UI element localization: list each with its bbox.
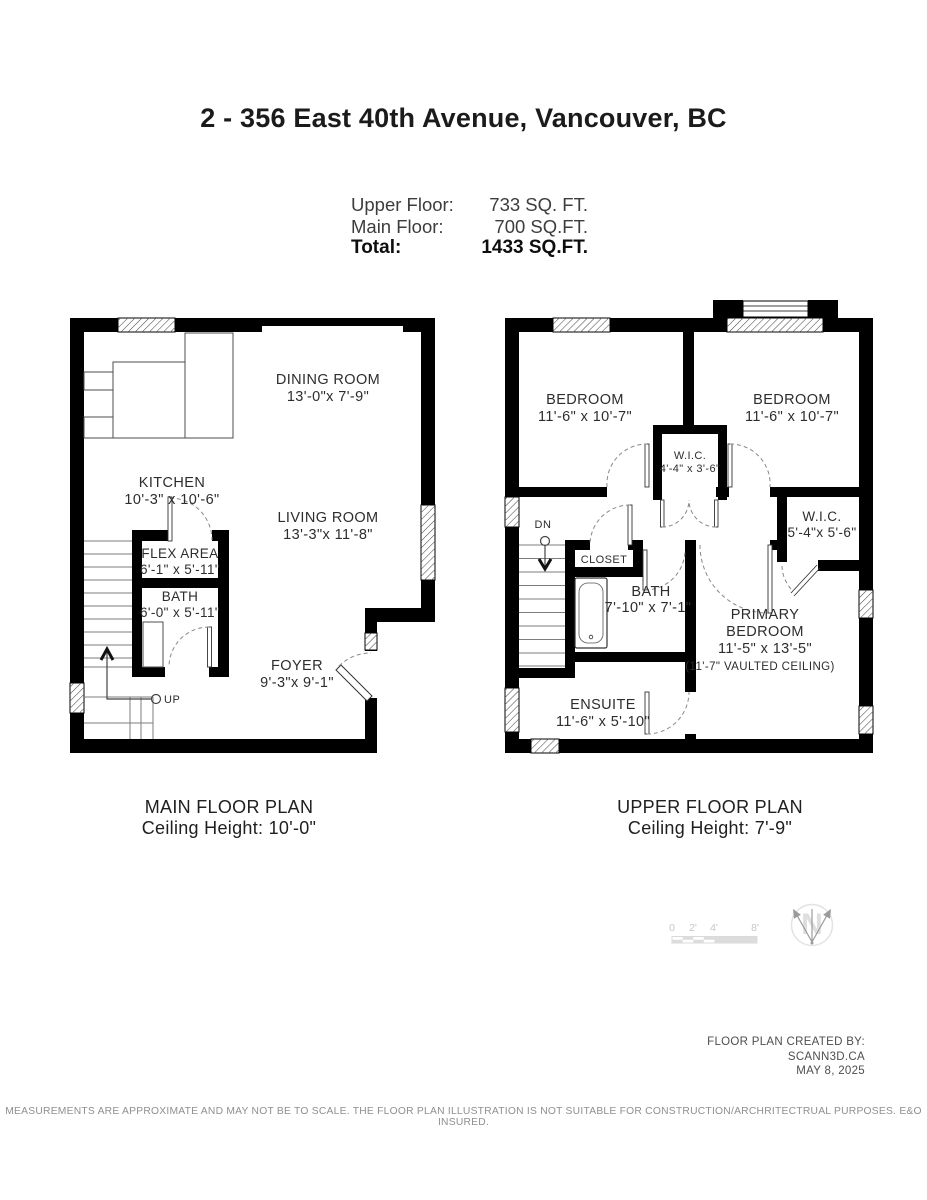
attribution: FLOOR PLAN CREATED BY: SCANN3D.CA MAY 8,…: [707, 1035, 865, 1079]
room-dims-kitchen: 10'-3" x 10'-6": [124, 492, 219, 508]
room-dims-living: 13'-3"x 11'-8": [283, 527, 373, 543]
attribution-line1: FLOOR PLAN CREATED BY:: [707, 1035, 865, 1050]
room-label-kitchen: KITCHEN: [139, 475, 205, 491]
room-dims-bedroom-right: 11'-6" x 10'-7": [745, 409, 839, 425]
room-label-foyer: FOYER: [271, 658, 323, 674]
attribution-line2: SCANN3D.CA: [707, 1050, 865, 1065]
room-dims-primary: 11'-5" x 13'-5": [718, 641, 812, 657]
main-floor-plan: UP DINING ROOM 13'-0"x 7'-9" KITCHEN 10'…: [70, 318, 435, 753]
scale-tick-0: 0: [669, 922, 675, 934]
kitchen-counter: [84, 333, 233, 438]
main-floor-ceiling-height: Ceiling Height: 10'-0": [49, 818, 409, 839]
room-dims-bath-main: 6'-0" x 5'-11": [140, 605, 220, 620]
room-label-bedroom-right: BEDROOM: [753, 392, 831, 408]
scale-tick-8: 8': [751, 922, 759, 934]
room-label-bedroom-left: BEDROOM: [546, 392, 624, 408]
main-floor-caption-title: MAIN FLOOR PLAN: [49, 797, 409, 818]
room-label-dining: DINING ROOM: [276, 372, 380, 388]
room-dims-ensuite: 11'-6" x 5'-10": [556, 714, 650, 730]
plans-drawing: UP DINING ROOM 13'-0"x 7'-9" KITCHEN 10'…: [0, 0, 927, 1200]
stair-dn-guide: [539, 537, 551, 570]
room-label-primary-line1: PRIMARY: [731, 607, 800, 623]
upper-floor-caption: UPPER FLOOR PLAN Ceiling Height: 7'-9": [530, 797, 890, 839]
north-arrow-icon: [793, 909, 831, 945]
room-dims-wic-center: 4'-4" x 3'-6": [660, 463, 721, 475]
room-dims-dining: 13'-0"x 7'-9": [287, 389, 369, 405]
bathtub: [575, 578, 607, 648]
room-label-living: LIVING ROOM: [277, 510, 378, 526]
room-dims-bath-upper: 7'-10" x 7'-1": [605, 600, 692, 616]
main-floor-caption: MAIN FLOOR PLAN Ceiling Height: 10'-0": [49, 797, 409, 839]
room-dims-foyer: 9'-3"x 9'-1": [260, 675, 334, 691]
scale-tick-2: 2': [689, 922, 697, 934]
room-label-primary-line2: BEDROOM: [726, 624, 804, 640]
room-label-flex: FLEX AREA: [141, 546, 218, 561]
bath-vanity: [143, 622, 163, 667]
room-label-wic-right: W.I.C.: [802, 509, 841, 524]
room-label-ensuite: ENSUITE: [570, 697, 636, 713]
room-label-bath-upper: BATH: [631, 584, 670, 600]
room-dims-wic-right: 5'-4"x 5'-6": [787, 525, 856, 540]
room-label-bath-main: BATH: [162, 589, 199, 604]
upper-floor-ceiling-height: Ceiling Height: 7'-9": [530, 818, 890, 839]
room-dims-bedroom-left: 11'-6" x 10'-7": [538, 409, 632, 425]
scale-bar: 0 2' 4' 8': [669, 922, 759, 943]
stair-label-up: UP: [164, 694, 180, 706]
upper-floor-caption-title: UPPER FLOOR PLAN: [530, 797, 890, 818]
room-note-primary: (11'-7" VAULTED CEILING): [685, 661, 834, 673]
room-label-closet: CLOSET: [581, 554, 627, 566]
stair-label-dn: DN: [534, 519, 551, 531]
attribution-line3: MAY 8, 2025: [707, 1064, 865, 1079]
compass: N: [792, 905, 833, 946]
wall-recess: [262, 326, 403, 332]
room-dims-flex: 6'-1" x 5'-11": [140, 562, 220, 577]
upper-floor-plan: DN BEDROOM 11'-6" x 10'-7" BEDROOM 11'-6…: [505, 300, 873, 753]
scale-tick-4: 4': [710, 922, 718, 934]
floor-plan-sheet: 2 - 356 East 40th Avenue, Vancouver, BC …: [0, 0, 927, 1200]
room-label-wic-center: W.I.C.: [674, 450, 706, 462]
bay-window: [713, 300, 838, 332]
disclaimer: MEASUREMENTS ARE APPROXIMATE AND MAY NOT…: [0, 1106, 927, 1128]
